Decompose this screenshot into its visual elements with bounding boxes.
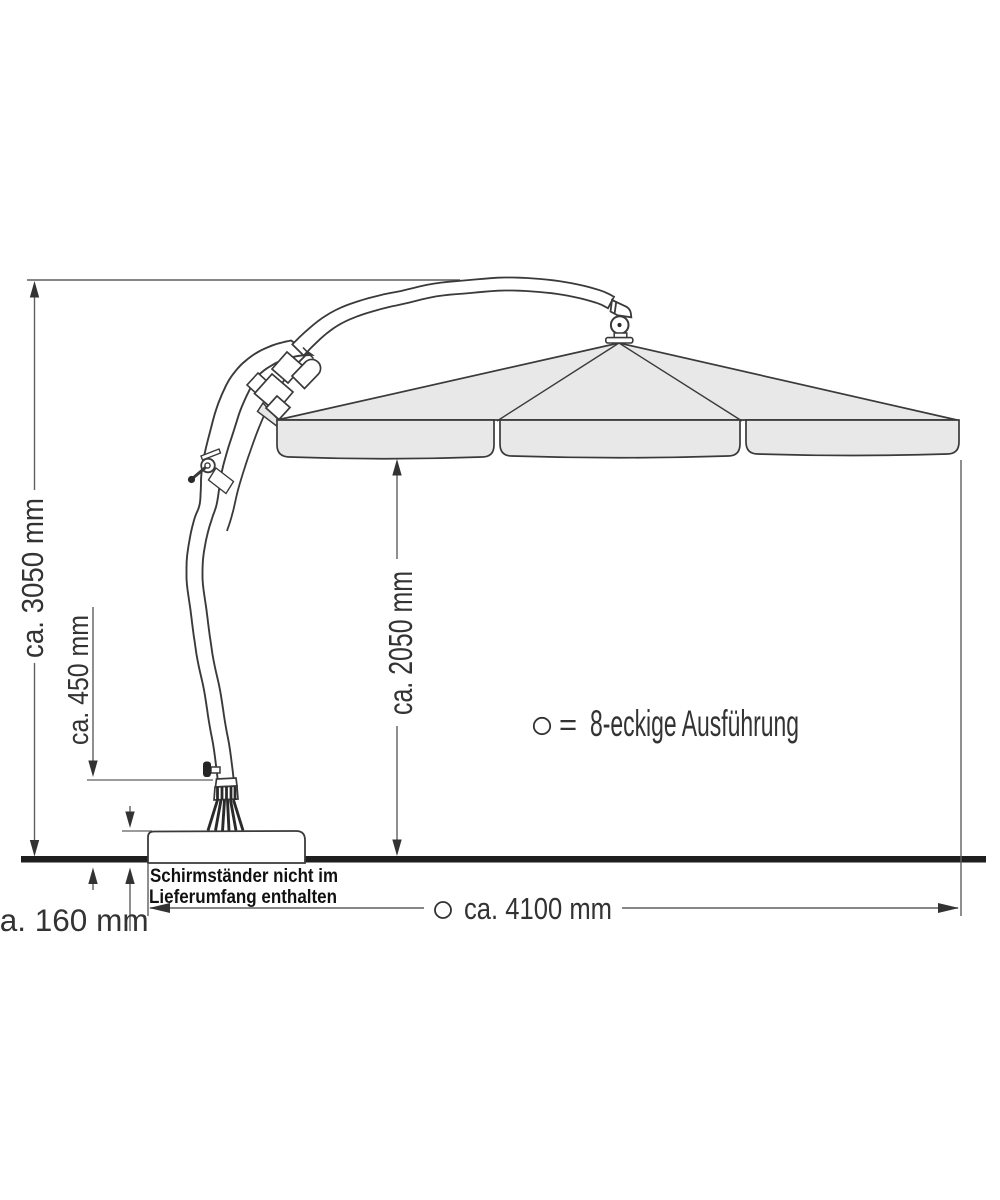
svg-text:Lieferumfang enthalten: Lieferumfang enthalten: [149, 887, 337, 908]
svg-text:8-eckige Ausführung: 8-eckige Ausführung: [590, 703, 799, 744]
svg-text:ca. 450 mm: ca. 450 mm: [63, 615, 95, 745]
svg-text:ca. 2050 mm: ca. 2050 mm: [382, 571, 419, 715]
svg-text:Schirmständer nicht im: Schirmständer nicht im: [150, 866, 338, 887]
svg-text:ca. 3050 mm: ca. 3050 mm: [15, 498, 50, 658]
svg-text:ca. 160 mm: ca. 160 mm: [0, 902, 149, 938]
svg-text:=: =: [559, 707, 577, 742]
svg-text:ca. 4100 mm: ca. 4100 mm: [464, 891, 612, 926]
